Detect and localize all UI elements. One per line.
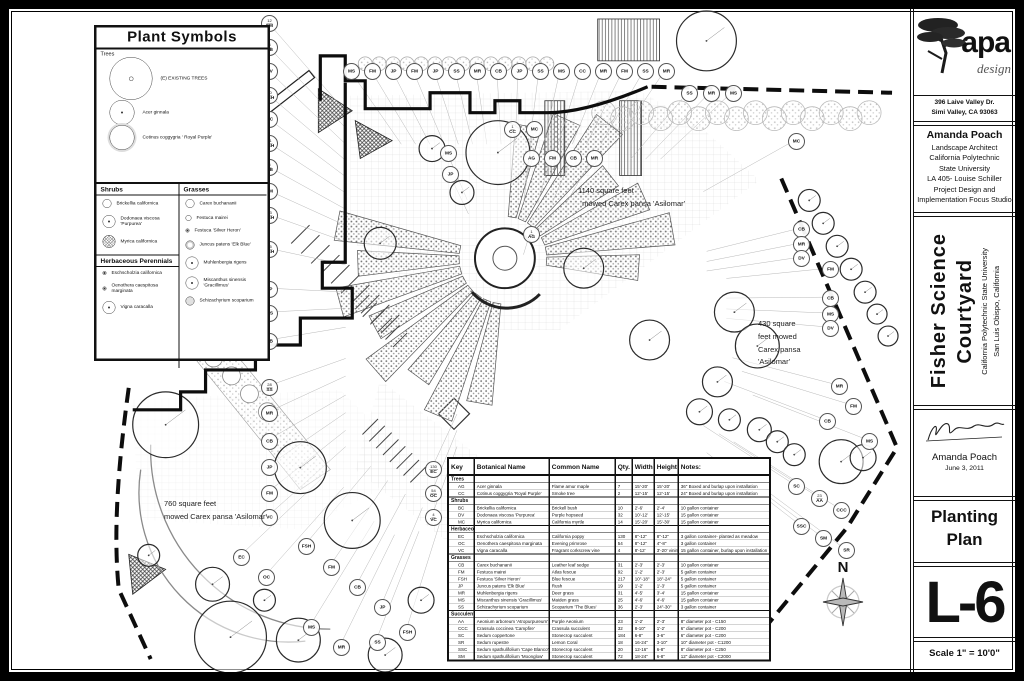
- brand-subtitle: design: [977, 61, 1011, 77]
- legend-item-label: Brickellia californica: [117, 201, 159, 206]
- schedule-cell: 31: [615, 561, 632, 568]
- schedule-row: AGAcer ginnalaFlame amur maple715'-20'15…: [448, 483, 770, 490]
- tree-canopy: [630, 320, 670, 360]
- tree-canopy: [274, 442, 326, 494]
- legend-symbol-dot: [103, 301, 116, 314]
- schedule-header: Notes:: [678, 458, 770, 475]
- schedule-cell: 24" Boxed and burlap upon installation: [678, 490, 770, 497]
- sheet-scale: Scale 1" = 10'0": [914, 642, 1015, 672]
- schedule-cell: BC: [448, 504, 474, 511]
- tree-canopy: [854, 281, 876, 303]
- schedule-cell: Blue fescue: [549, 575, 615, 582]
- planting-plan-sheet: Plant Symbols Trees (E) EXISTING TREESAc…: [0, 0, 1024, 681]
- legend-item-label: Miscanthus sinensis 'Gracillimus': [204, 278, 265, 289]
- legend-symbol-target: [110, 57, 153, 100]
- legend-item-label: Dodonaea viscosa 'Purpurea': [121, 216, 177, 227]
- tree-canopy: [878, 326, 898, 346]
- schedule-row: MRMuhlenbergia rigensDeer grass314'-5'3'…: [448, 589, 770, 596]
- schedule-cell: 1'-2': [632, 582, 654, 589]
- schedule-cell: 23: [615, 618, 632, 625]
- plant-callout: FM: [544, 150, 561, 167]
- schedule-cell: JP: [448, 582, 474, 589]
- schedule-cell: 2'-3': [632, 561, 654, 568]
- tree-canopy: [867, 304, 887, 324]
- schedule-cell: SR: [448, 639, 474, 646]
- schedule-cell: 4'-6': [654, 596, 678, 603]
- legend-symbol-dot: [110, 100, 135, 125]
- legend-symbol-dot: [186, 276, 199, 289]
- north-label: N: [821, 559, 865, 576]
- schedule-header: Key: [448, 458, 474, 475]
- plant-callout: 1CC: [504, 121, 521, 138]
- callout-code: JP: [390, 69, 396, 74]
- schedule-cell: OC: [448, 540, 474, 547]
- schedule-cell: 15'-20': [654, 483, 678, 490]
- legend-item: Vigna caracalla: [97, 297, 179, 317]
- plant-callout: SR: [838, 542, 855, 559]
- callout-code: MS: [729, 91, 736, 96]
- schedule-cell: Fragrant corkscrew vine: [549, 547, 615, 554]
- callout-code: FM: [411, 69, 418, 74]
- legend-item: Festuca mairei: [180, 212, 267, 225]
- plant-callout: MR: [595, 63, 612, 80]
- plant-callout: CB: [822, 290, 839, 307]
- schedule-cell: 32: [615, 625, 632, 632]
- callout-code: CCC: [836, 508, 846, 513]
- schedule-cell: 4: [615, 547, 632, 554]
- schedule-cell: 36: [615, 603, 632, 610]
- schedule-cell: 184: [615, 632, 632, 639]
- plant-callout: CB: [565, 150, 582, 167]
- schedule-cell: Rush: [549, 582, 615, 589]
- schedule-cell: Lemon Coral: [549, 639, 615, 646]
- firm-logo: apa design: [914, 9, 1015, 95]
- callout-code: JP: [432, 69, 438, 74]
- plant-callout: 23AA: [811, 490, 828, 507]
- tree-canopy: [196, 567, 230, 601]
- schedule-cell: SC: [448, 632, 474, 639]
- schedule-cell: 19: [615, 582, 632, 589]
- schedule-cell: Myrica californica: [474, 518, 549, 525]
- plant-callout: OC: [258, 569, 275, 586]
- schedule-cell: 2'-3': [654, 568, 678, 575]
- callout-code: MR: [662, 69, 669, 74]
- plant-callout: DV: [822, 320, 839, 337]
- schedule-row: BCBrickellia californicaBrickell bush102…: [448, 504, 770, 511]
- callout-code: SS: [642, 69, 648, 74]
- plant-callout: SS: [532, 63, 549, 80]
- tree-canopy: [138, 544, 160, 566]
- callout-code: EC: [430, 469, 437, 474]
- signature-section: Amanda Poach June 3, 2011: [914, 410, 1015, 496]
- legend-item: Dodonaea viscosa 'Purpurea': [97, 212, 179, 232]
- plant-callout: MS: [861, 433, 878, 450]
- callout-code: MR: [265, 411, 272, 416]
- plant-callout: FM: [323, 559, 340, 576]
- legend-item: Miscanthus sinensis 'Gracillimus': [180, 273, 267, 293]
- plan-drawing-area: Plant Symbols Trees (E) EXISTING TREESAc…: [9, 9, 911, 672]
- schedule-cell: CCC: [448, 625, 474, 632]
- schedule-cell: Crassula coccinea 'Campfire': [474, 625, 549, 632]
- plant-callout: AG: [523, 150, 540, 167]
- legend-item-label: Schizachyrium scoparium: [200, 298, 254, 303]
- tree-canopy: [253, 589, 275, 611]
- legend-item: Carex buchananii: [180, 196, 267, 212]
- plant-callout: SC: [788, 478, 805, 495]
- designer-detail-line: Landscape Architect: [916, 143, 1013, 154]
- callout-code: FSH: [301, 544, 311, 549]
- schedule-cell: 3'-20' vining: [654, 547, 678, 554]
- plant-callout: FSH: [399, 624, 416, 641]
- schedule-cell: 15 gallon container, burlap upon install…: [678, 547, 770, 554]
- schedule-row: DVDodonaea viscosa 'Purpurea'Purple hops…: [448, 511, 770, 518]
- schedule-cell: Sedum coppertone: [474, 632, 549, 639]
- plant-callout: 130EC: [425, 461, 442, 478]
- schedule-cell: MS: [448, 596, 474, 603]
- plant-callout: 4VC: [425, 509, 442, 526]
- legend-item: Acer ginnala: [97, 100, 268, 125]
- schedule-row: VCVigna caracallaFragrant corkscrew vine…: [448, 547, 770, 554]
- schedule-cell: CB: [448, 561, 474, 568]
- schedule-header: Botanical Name: [474, 458, 549, 475]
- schedule-cell: SSC: [448, 646, 474, 653]
- plant-callout: 54OC: [425, 485, 442, 502]
- schedule-row: SSSchizachyrium scopariumScoparium 'The …: [448, 603, 770, 610]
- callout-code: CB: [798, 227, 805, 232]
- callout-code: SM: [819, 536, 826, 541]
- schedule-cell: Stonecrop succulent: [549, 653, 615, 661]
- tree-canopy: [195, 601, 267, 672]
- tree-canopy: [826, 235, 848, 257]
- schedule-cell: 3'-4': [654, 589, 678, 596]
- tree-canopy: [324, 493, 380, 549]
- callout-code: FSH: [402, 630, 412, 635]
- project-subtitle-line2: San Luis Obispo, California: [992, 266, 1001, 357]
- legend-symbol-dot: [186, 229, 190, 233]
- sheet-title: Planting Plan: [914, 501, 1015, 562]
- plant-callout: MS: [440, 145, 457, 162]
- schedule-cell: Miscanthus sinensis 'Gracillimus': [474, 596, 549, 603]
- schedule-cell: Acer ginnala: [474, 483, 549, 490]
- schedule-row: CCCotinus coggygria 'Royal Purple'Smoke …: [448, 490, 770, 497]
- plant-callout: JP: [385, 63, 402, 80]
- callout-code: SC: [793, 484, 800, 489]
- schedule-cell: 15'-20': [632, 483, 654, 490]
- schedule-group-row: Trees: [448, 475, 770, 483]
- schedule-group-row: Grasses: [448, 554, 770, 561]
- schedule-cell: California myrtle: [549, 518, 615, 525]
- plant-callout: JP: [511, 63, 528, 80]
- schedule-row: CCCCrassula coccinea 'Campfire'Crassula …: [448, 625, 770, 632]
- legend-item: (E) EXISTING TREES: [97, 57, 268, 100]
- sheet-number: L-6: [914, 567, 1015, 637]
- schedule-cell: 10"-18": [632, 575, 654, 582]
- callout-code: AG: [527, 234, 534, 239]
- schedule-cell: Cotinus coggygria 'Royal Purple': [474, 490, 549, 497]
- legend-symbol-dot: [103, 271, 107, 275]
- firm-address: 396 Laive Valley Dr. Simi Valley, CA 930…: [914, 95, 1015, 121]
- sheet-title-line2: Plan: [914, 529, 1015, 552]
- schedule-cell: 54: [615, 540, 632, 547]
- address-line-2: Simi Valley, CA 93063: [914, 108, 1015, 118]
- schedule-cell: Aeonium arboreum 'Atropurpureum': [474, 618, 549, 625]
- schedule-cell: 32: [615, 511, 632, 518]
- schedule-cell: 18-24": [632, 653, 654, 661]
- schedule-cell: 10'-12': [632, 511, 654, 518]
- schedule-cell: 18: [615, 639, 632, 646]
- schedule-cell: Maiden grass: [549, 596, 615, 603]
- schedule-cell: 15'-30': [654, 518, 678, 525]
- sheet-title-line1: Planting: [914, 506, 1015, 529]
- schedule-cell: 2'-3': [654, 618, 678, 625]
- callout-code: JP: [516, 69, 522, 74]
- designer-detail-line: Implementation Focus Studio: [916, 195, 1013, 206]
- legend-section-header: Herbaceous Perennials: [97, 255, 179, 268]
- legend-item: Eschscholzia californica: [97, 267, 179, 279]
- callout-code: CB: [495, 69, 502, 74]
- plant-callout: MR: [831, 378, 848, 395]
- plant-callout: FSH: [298, 538, 315, 555]
- callout-code: FM: [328, 565, 335, 570]
- callout-code: EC: [238, 555, 245, 560]
- project-title-section: Fisher Science Courtyard California Poly…: [914, 217, 1015, 405]
- legend-section-header: Grasses: [180, 184, 267, 196]
- legend-item-label: Vigna caracalla: [121, 305, 153, 310]
- plant-callout: CC: [574, 63, 591, 80]
- legend-symbol-dot: [186, 256, 199, 269]
- area-annotation: 1140 square feet mowed Carex pansa 'Asil…: [578, 185, 685, 211]
- schedule-cell: 12'-15': [654, 511, 678, 518]
- legend-item: Cotinus coggygria ' Royal Purple': [97, 125, 268, 150]
- callout-code: SR: [843, 548, 850, 553]
- callout-code: SS: [266, 387, 272, 392]
- legend-symbol-gray: [186, 240, 195, 249]
- callout-code: AA: [816, 498, 823, 503]
- schedule-cell: 8"-12": [632, 540, 654, 547]
- legend-item-label: Muhlenbergia rigens: [204, 260, 247, 265]
- schedule-cell: 2'-3': [654, 561, 678, 568]
- schedule-cell: 12-16": [632, 646, 654, 653]
- callout-code: MS: [444, 151, 451, 156]
- schedule-cell: VC: [448, 547, 474, 554]
- schedule-header: Common Name: [549, 458, 615, 475]
- schedule-row: AAAeonium arboreum 'Atropurpureum'Purple…: [448, 618, 770, 625]
- schedule-cell: 2: [615, 490, 632, 497]
- plant-callout: CCC: [833, 502, 850, 519]
- legend-item-label: Festuca 'Silver Heron': [195, 228, 241, 233]
- schedule-cell: 12'-15': [654, 490, 678, 497]
- legend-item-label: Oenothera caespitosa marginata: [112, 283, 177, 294]
- schedule-cell: Eschscholzia californica: [474, 533, 549, 540]
- schedule-cell: 12'-15': [632, 490, 654, 497]
- plant-callout: JP: [261, 459, 278, 476]
- schedule-cell: 15 gallon container: [678, 511, 770, 518]
- tree-canopy: [408, 587, 434, 613]
- legend-trees-label: Trees: [97, 50, 268, 58]
- tree-canopy: [783, 444, 805, 466]
- schedule-cell: Purple hopseed: [549, 511, 615, 518]
- tree-canopy: [702, 367, 732, 397]
- legend-symbol-dot: [103, 215, 116, 228]
- callout-code: MR: [590, 156, 597, 161]
- plant-callout: FM: [406, 63, 423, 80]
- schedule-row: FSHFestuca 'Silver Heron'Blue fescue2171…: [448, 575, 770, 582]
- designer-detail-line: Project Design and: [916, 185, 1013, 196]
- plant-callout: MS: [553, 63, 570, 80]
- plant-callout: MR: [469, 63, 486, 80]
- schedule-cell: Sedum spathulifolium 'Cape Blanco': [474, 646, 549, 653]
- schedule-cell: 2'-4': [654, 504, 678, 511]
- callout-code: MS: [557, 69, 564, 74]
- legend-symbol-plain: [186, 215, 192, 221]
- schedule-cell: 92: [615, 568, 632, 575]
- schedule-cell: AA: [448, 618, 474, 625]
- schedule-cell: 217: [615, 575, 632, 582]
- schedule-cell: DV: [448, 511, 474, 518]
- schedule-row: SRSedum rupestreLemon Coral1816-24"3-10"…: [448, 639, 770, 646]
- callout-code: JP: [379, 605, 385, 610]
- tree-canopy: [798, 189, 820, 211]
- legend-right-column: GrassesCarex buchananiiFestuca maireiFes…: [179, 184, 267, 368]
- legend-section-header: Shrubs: [97, 184, 179, 196]
- schedule-cell: Sedum spathulifolium 'Moonglow': [474, 653, 549, 661]
- schedule-cell: 72: [615, 653, 632, 661]
- legend-item-label: Acer ginnala: [143, 110, 169, 115]
- schedule-cell: MR: [448, 589, 474, 596]
- plant-callout: CB: [349, 579, 366, 596]
- address-line-1: 396 Laive Valley Dr.: [914, 98, 1015, 108]
- title-block: apa design 396 Laive Valley Dr. Simi Val…: [910, 9, 1015, 672]
- project-title-line1: Fisher Science: [928, 233, 951, 388]
- schedule-cell: Brickellia californica: [474, 504, 549, 511]
- schedule-cell: 3-6": [654, 632, 678, 639]
- schedule-cell: 1'-2': [654, 625, 678, 632]
- legend-item-label: Eschscholzia californica: [112, 271, 162, 276]
- schedule-cell: EC: [448, 533, 474, 540]
- schedule-cell: Carex buchananii: [474, 561, 549, 568]
- plant-callout: SS: [681, 85, 698, 102]
- plant-callout: 28SS: [261, 379, 278, 396]
- callout-code: MS: [307, 625, 314, 630]
- schedule-row: SMSedum spathulifolium 'Moonglow'Stonecr…: [448, 653, 770, 661]
- callout-code: VC: [430, 517, 437, 522]
- compass-rose-icon: [821, 576, 865, 628]
- schedule-cell: 1'-2': [632, 568, 654, 575]
- tree-canopy: [686, 399, 712, 425]
- schedule-cell: 10 gallon container: [678, 561, 770, 568]
- callout-code: OC: [429, 493, 436, 498]
- schedule-row: OCOenothera caespitosa marginataEvening …: [448, 540, 770, 547]
- schedule-cell: Oenothera caespitosa marginata: [474, 540, 549, 547]
- plant-callout: SS: [637, 63, 654, 80]
- plant-callout: MR: [261, 405, 278, 422]
- schedule-row: CBCarex buchananiiLeather leaf sedge312'…: [448, 561, 770, 568]
- plant-callout: CB: [261, 433, 278, 450]
- schedule-cell: Deer grass: [549, 589, 615, 596]
- plant-callout: MR: [658, 63, 675, 80]
- schedule-cell: Dodonaea viscosa 'Purpurea': [474, 511, 549, 518]
- schedule-row: SSCSedum spathulifolium 'Cape Blanco'Sto…: [448, 646, 770, 653]
- legend-symbol-dot: [103, 286, 107, 290]
- schedule-cell: 5 gallon container: [678, 582, 770, 589]
- schedule-cell: 24"-30": [654, 603, 678, 610]
- plant-callout: MS: [725, 85, 742, 102]
- tree-canopy: [450, 180, 474, 204]
- schedule-cell: 5 gallon container: [678, 575, 770, 582]
- plant-callout: SS: [448, 63, 465, 80]
- project-subtitle-line1: California Polytechnic State University: [980, 248, 989, 375]
- callout-code: FM: [850, 404, 857, 409]
- schedule-cell: SM: [448, 653, 474, 661]
- plant-callout: FM: [616, 63, 633, 80]
- schedule-cell: 31: [615, 589, 632, 596]
- schedule-cell: Stonecrop succulent: [549, 646, 615, 653]
- legend-item-label: Cotinus coggygria ' Royal Purple': [143, 135, 213, 140]
- callout-code: MR: [835, 384, 842, 389]
- schedule-cell: 3-10": [654, 639, 678, 646]
- plant-callout: 1AG: [523, 226, 540, 243]
- callout-code: SS: [453, 69, 459, 74]
- schedule-cell: Flame amur maple: [549, 483, 615, 490]
- schedule-group-row: Succulents: [448, 611, 770, 618]
- legend-item: Schizachyrium scoparium: [180, 293, 267, 309]
- plant-callout: JP: [427, 63, 444, 80]
- callout-code: CB: [827, 296, 834, 301]
- schedule-cell: FM: [448, 568, 474, 575]
- tree-canopy: [840, 258, 862, 280]
- legend-symbol-hatch: [103, 235, 116, 248]
- legend-item: Oenothera caespitosa marginata: [97, 279, 179, 297]
- plant-callout: FM: [822, 261, 839, 278]
- area-annotation: 430 square feet mowed Carex pansa 'Asilo…: [758, 318, 801, 369]
- callout-code: MR: [599, 69, 606, 74]
- schedule-cell: Evening primrose: [549, 540, 615, 547]
- schedule-cell: CC: [448, 490, 474, 497]
- callout-code: MR: [473, 69, 480, 74]
- schedule-cell: Leather leaf sedge: [549, 561, 615, 568]
- callout-code: MS: [865, 439, 872, 444]
- plant-callout: FM: [364, 63, 381, 80]
- tree-canopy: [364, 227, 396, 259]
- legend-symbol-stipple: [186, 296, 195, 305]
- north-compass: N: [821, 559, 865, 633]
- plant-symbols-legend: Plant Symbols Trees (E) EXISTING TREESAc…: [94, 25, 270, 361]
- callout-code: MR: [707, 91, 714, 96]
- callout-code: FM: [266, 491, 273, 496]
- schedule-cell: SS: [448, 603, 474, 610]
- schedule-cell: 6" diameter pot - C200: [678, 632, 770, 639]
- legend-item-label: Carex buchananii: [200, 201, 237, 206]
- tree-canopy: [564, 248, 604, 288]
- callout-code: CB: [354, 585, 361, 590]
- schedule-cell: 10: [615, 504, 632, 511]
- legend-item-label: Festuca mairei: [197, 215, 228, 220]
- schedule-cell: 8" diameter pot - C250: [678, 646, 770, 653]
- schedule-cell: 8"-12": [632, 533, 654, 540]
- schedule-cell: 6-8": [632, 632, 654, 639]
- designer-details: Landscape ArchitectCalifornia Polytechni…: [916, 143, 1013, 206]
- schedule-cell: 4'-6': [632, 596, 654, 603]
- plant-callout: FM: [845, 398, 862, 415]
- schedule-cell: 8"-12": [654, 533, 678, 540]
- legend-item-label: Myrica californica: [121, 239, 158, 244]
- schedule-cell: Muhlenbergia rigens: [474, 589, 549, 596]
- callout-code: MC: [792, 139, 799, 144]
- callout-code: SS: [686, 91, 692, 96]
- plant-schedule-table: KeyBotanical NameCommon NameQty.WidthHei…: [447, 457, 769, 669]
- schedule-cell: Smoke tree: [549, 490, 615, 497]
- schedule-cell: 4"-8": [654, 540, 678, 547]
